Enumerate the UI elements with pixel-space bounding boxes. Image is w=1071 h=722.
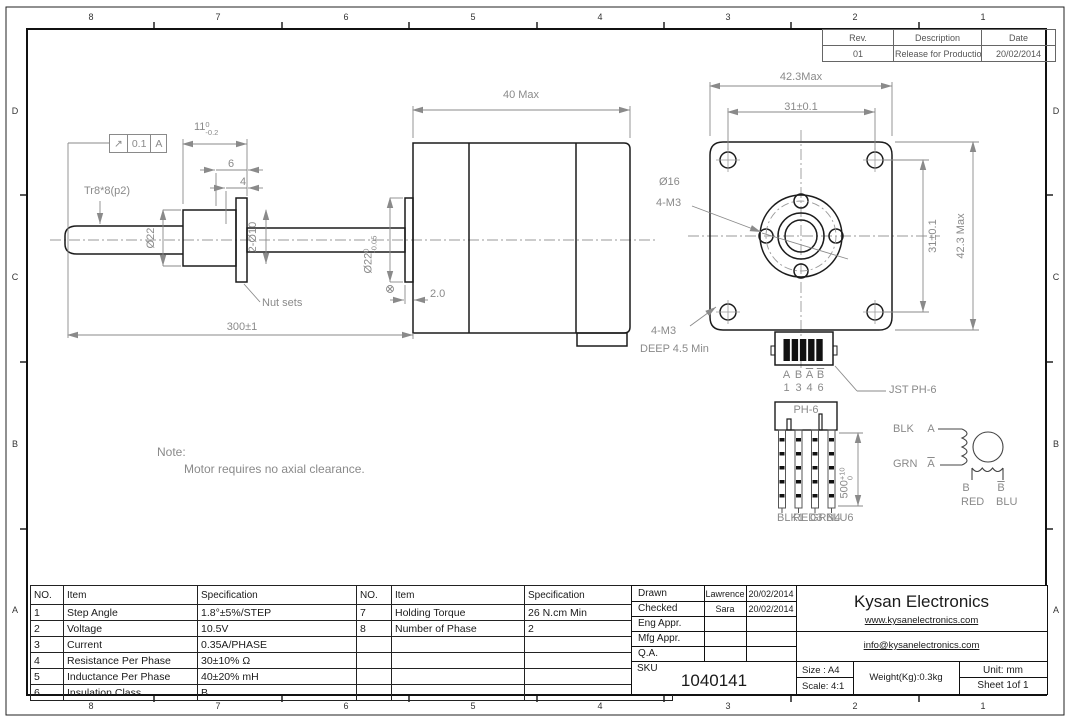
desc-col-header: Description bbox=[894, 30, 982, 46]
pin-letter-a: A bbox=[781, 369, 792, 381]
dim-dia22-tol: Ø220-0.05 bbox=[363, 210, 378, 274]
zone-label-bottom: 6 bbox=[337, 701, 355, 711]
schematic-red: RED bbox=[961, 496, 972, 509]
zone-label-bottom: 7 bbox=[209, 701, 227, 711]
weight-value: Weight(Kg):0.3kg bbox=[853, 672, 959, 683]
dim-6: 6 bbox=[224, 158, 238, 170]
thread-callout: Tr8*8(p2) bbox=[84, 185, 130, 197]
drawing-sheet: 8 7 6 5 4 3 2 1 8 7 6 5 4 3 2 1 D C B A … bbox=[0, 0, 1071, 722]
mfg-appr-label: Mfg Appr. bbox=[638, 633, 680, 644]
schematic-a: A bbox=[925, 423, 937, 435]
zone-label-bottom: 8 bbox=[82, 701, 100, 711]
zone-label-bottom: 5 bbox=[464, 701, 482, 711]
rev-description: Release for Production bbox=[894, 46, 982, 62]
zone-label-right: A bbox=[1047, 605, 1065, 615]
dim-31-top: 31±0.1 bbox=[764, 101, 838, 113]
title-block: Drawn Lawrence 20/02/2014 Checked Sara 2… bbox=[631, 585, 1048, 695]
spec-row: 6Insulation ClassB bbox=[31, 685, 357, 701]
callout-deep-4-5-min: DEEP 4.5 Min bbox=[640, 343, 709, 355]
checked-name: Sara bbox=[704, 604, 746, 614]
zone-label-bottom: 1 bbox=[974, 701, 992, 711]
zone-label-left: A bbox=[6, 605, 24, 615]
sheet-value: Sheet 1of 1 bbox=[959, 680, 1047, 691]
spec-row: 3Current0.35A/PHASE bbox=[31, 637, 357, 653]
spec-header-no: NO. bbox=[357, 586, 392, 605]
spec-row: 8Number of Phase2 bbox=[357, 621, 673, 637]
gdt-datum: A bbox=[150, 135, 166, 152]
zone-label-right: C bbox=[1047, 272, 1065, 282]
wire-label-blu6: BLU6 bbox=[826, 512, 837, 525]
zone-label-top: 2 bbox=[846, 12, 864, 22]
sku-value: 1040141 bbox=[632, 671, 796, 691]
spec-header-item: Item bbox=[64, 586, 198, 605]
dim-300: 300±1 bbox=[212, 321, 272, 333]
schematic-grn: GRN bbox=[893, 458, 917, 470]
spec-row: 2Voltage10.5V bbox=[31, 621, 357, 637]
dim-dia16: Ø16 bbox=[659, 176, 680, 188]
drawn-label: Drawn bbox=[638, 588, 667, 599]
gdt-runout-frame: ↗ 0.1 A bbox=[109, 134, 167, 153]
spec-row: 4Resistance Per Phase30±10% Ω bbox=[31, 653, 357, 669]
schematic-blk: BLK bbox=[893, 423, 914, 435]
nut-sets-callout: Nut sets bbox=[262, 297, 302, 309]
pin-number-3: 3 bbox=[793, 382, 804, 394]
zone-label-bottom: 3 bbox=[719, 701, 737, 711]
zone-label-top: 1 bbox=[974, 12, 992, 22]
runout-symbol-icon: ↗ bbox=[110, 135, 127, 152]
dim-11-tol: 110-0.2 bbox=[194, 121, 218, 136]
spec-header-item: Item bbox=[392, 586, 525, 605]
note-body: Motor requires no axial clearance. bbox=[184, 463, 365, 476]
checked-label: Checked bbox=[638, 603, 677, 614]
dim-500-tol: 500+100 bbox=[839, 443, 854, 499]
dim-42-3-top: 42.3Max bbox=[764, 71, 838, 83]
drawn-date: 20/02/2014 bbox=[746, 589, 796, 599]
rev-value: 01 bbox=[823, 46, 894, 62]
note-title: Note: bbox=[157, 446, 186, 459]
spec-header-spec: Specification bbox=[198, 586, 357, 605]
schematic-blu: BLU bbox=[996, 496, 1007, 509]
spec-row bbox=[357, 653, 673, 669]
ph6-label: PH-6 bbox=[775, 404, 837, 416]
spec-header-no: NO. bbox=[31, 586, 64, 605]
rev-date: 20/02/2014 bbox=[982, 46, 1056, 62]
qa-label: Q.A. bbox=[638, 648, 658, 659]
wiring-schematic bbox=[938, 429, 1003, 480]
zone-label-bottom: 2 bbox=[846, 701, 864, 711]
dim-42-3-right: 42.3 Max bbox=[955, 204, 967, 268]
motor-connector bbox=[771, 332, 837, 365]
schematic-b-bar: B bbox=[995, 482, 1007, 494]
spec-row: 5Inductance Per Phase40±20% mH bbox=[31, 669, 357, 685]
pin-letter-a-bar: A bbox=[804, 369, 815, 381]
zone-label-top: 6 bbox=[337, 12, 355, 22]
dim-2x-dia10: 2-Ø10 bbox=[247, 214, 259, 260]
dim-2-0: 2.0 bbox=[430, 288, 445, 300]
checked-date: 20/02/2014 bbox=[746, 604, 796, 614]
zone-label-bottom: 4 bbox=[591, 701, 609, 711]
unit-value: Unit: mm bbox=[959, 665, 1047, 676]
zone-label-left: D bbox=[6, 106, 24, 116]
pin-number-4: 4 bbox=[804, 382, 815, 394]
zone-label-right: D bbox=[1047, 106, 1065, 116]
eng-appr-label: Eng Appr. bbox=[638, 618, 681, 629]
dim-40-max: 40 Max bbox=[480, 89, 562, 101]
spec-row bbox=[357, 685, 673, 701]
drawn-name: Lawrence bbox=[704, 589, 746, 599]
pin-letter-b: B bbox=[793, 369, 804, 381]
spec-row: 1Step Angle1.8°±5%/STEP bbox=[31, 605, 357, 621]
date-col-header: Date bbox=[982, 30, 1056, 46]
rev-col-header: Rev. bbox=[823, 30, 894, 46]
dim-4: 4 bbox=[236, 176, 250, 188]
spec-row: 7Holding Torque26 N.cm Min bbox=[357, 605, 673, 621]
pin-letter-b-bar: B bbox=[815, 369, 826, 381]
company-website: www.kysanelectronics.com bbox=[796, 615, 1047, 626]
gdt-tolerance: 0.1 bbox=[127, 135, 151, 152]
jst-ph6-callout: JST PH-6 bbox=[889, 384, 936, 396]
zone-label-left: C bbox=[6, 272, 24, 282]
zone-label-top: 3 bbox=[719, 12, 737, 22]
spec-row bbox=[357, 637, 673, 653]
pin-number-6: 6 bbox=[815, 382, 826, 394]
schematic-a-bar: A bbox=[925, 458, 937, 470]
pin-number-1: 1 bbox=[781, 382, 792, 394]
schematic-b: B bbox=[960, 482, 972, 494]
wire-label-blk1: BLK1 bbox=[777, 512, 788, 525]
dim-31-right: 31±0.1 bbox=[927, 209, 939, 263]
zone-label-left: B bbox=[6, 439, 24, 449]
company-name: Kysan Electronics bbox=[796, 592, 1047, 612]
dim-dia22: Ø22 bbox=[145, 216, 157, 260]
callout-4-m3: 4-M3 bbox=[656, 197, 681, 209]
revision-table: Rev. Description Date 01 Release for Pro… bbox=[822, 29, 1056, 62]
spec-table: NO. Item Specification 1Step Angle1.8°±5… bbox=[30, 585, 673, 701]
zone-label-top: 7 bbox=[209, 12, 227, 22]
spec-row bbox=[357, 669, 673, 685]
zone-label-right: B bbox=[1047, 439, 1065, 449]
scale-value: Scale: 4:1 bbox=[802, 681, 844, 692]
zone-label-top: 5 bbox=[464, 12, 482, 22]
callout-4-m3-deep: 4-M3 bbox=[651, 325, 676, 337]
wire-label-grn4: GRN4 bbox=[810, 512, 821, 525]
wire-label-red3: RED3 bbox=[793, 512, 804, 525]
zone-label-top: 4 bbox=[591, 12, 609, 22]
zone-label-top: 8 bbox=[82, 12, 100, 22]
company-email: info@kysanelectronics.com bbox=[796, 640, 1047, 651]
size-value: Size : A4 bbox=[802, 665, 840, 676]
